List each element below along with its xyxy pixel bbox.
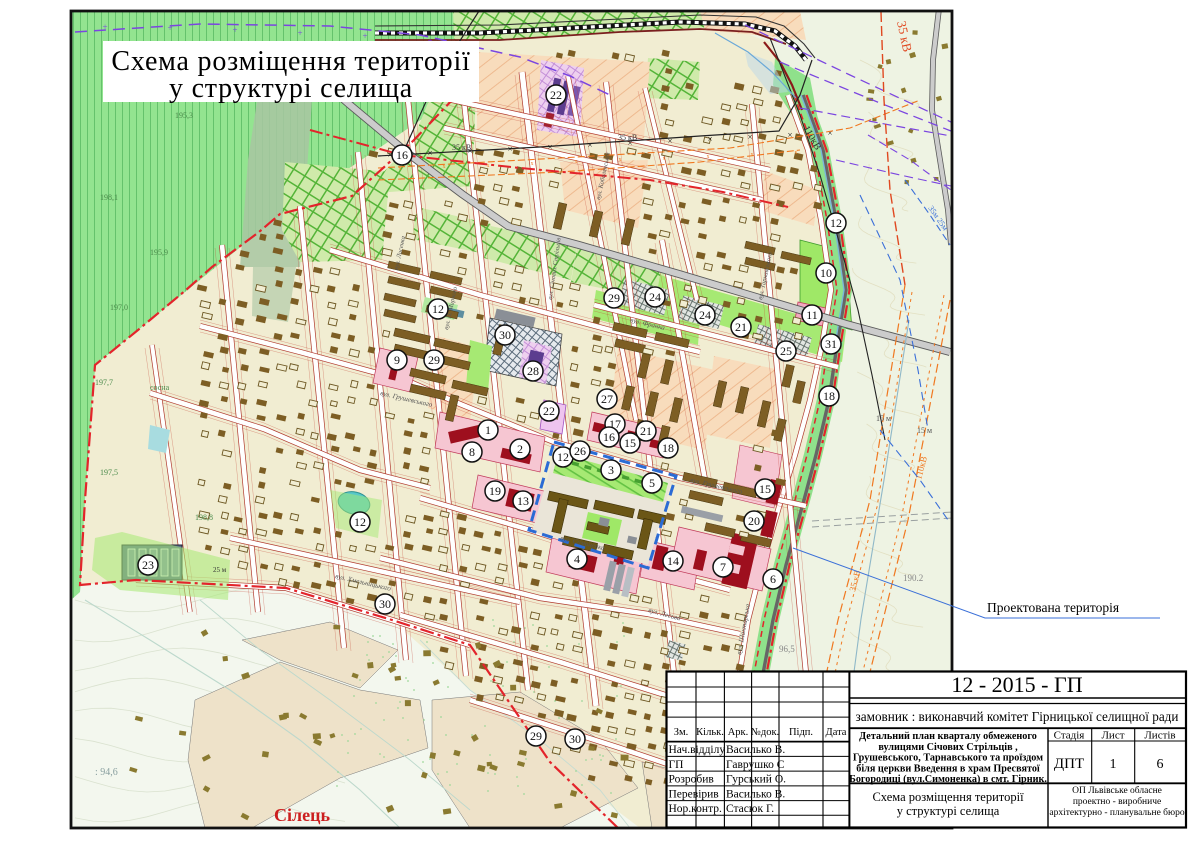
svg-text:Кільк.: Кільк. bbox=[696, 727, 724, 738]
svg-text:24: 24 bbox=[649, 290, 661, 304]
svg-text:12: 12 bbox=[354, 515, 366, 529]
svg-text:Підп.: Підп. bbox=[789, 727, 813, 738]
svg-text:×: × bbox=[427, 148, 432, 158]
svg-text:Стасюк Г.: Стасюк Г. bbox=[726, 803, 774, 815]
svg-text:Стадія: Стадія bbox=[1054, 730, 1085, 742]
svg-text:25 м: 25 м bbox=[213, 566, 227, 574]
svg-text:13: 13 bbox=[517, 494, 529, 508]
svg-text:x: x bbox=[399, 166, 402, 172]
svg-text:22: 22 bbox=[543, 404, 555, 418]
svg-text:12: 12 bbox=[557, 450, 569, 464]
svg-text:+: + bbox=[102, 22, 107, 32]
svg-text:29: 29 bbox=[608, 291, 620, 305]
svg-text:Гурський О.: Гурський О. bbox=[726, 774, 786, 786]
svg-text:96,5: 96,5 bbox=[779, 644, 795, 654]
svg-text:6: 6 bbox=[770, 572, 776, 586]
svg-text:Василько В.: Василько В. bbox=[726, 789, 785, 801]
svg-text:+: + bbox=[297, 28, 302, 38]
svg-text:29: 29 bbox=[428, 353, 440, 367]
svg-text:Василько В.: Василько В. bbox=[726, 744, 785, 756]
svg-text:ГП: ГП bbox=[669, 759, 684, 771]
svg-text:15: 15 bbox=[759, 482, 771, 496]
svg-text:Гаврушко С: Гаврушко С bbox=[726, 759, 785, 771]
svg-text:6: 6 bbox=[1157, 757, 1164, 772]
svg-text:11: 11 bbox=[806, 308, 818, 322]
svg-text:×: × bbox=[587, 140, 592, 150]
svg-text:×: × bbox=[747, 132, 752, 142]
svg-text:+: + bbox=[167, 23, 172, 33]
svg-text:у структурі селища: у структурі селища bbox=[169, 73, 413, 104]
svg-text:4: 4 bbox=[574, 552, 580, 566]
svg-text:×: × bbox=[667, 136, 672, 146]
svg-text:замовник : виконавчий комітет: замовник : виконавчий комітет Гірницької… bbox=[856, 709, 1179, 724]
svg-text:35 кВ: 35 кВ bbox=[452, 143, 471, 152]
svg-text:30: 30 bbox=[499, 328, 511, 342]
svg-text:15 м: 15 м bbox=[917, 426, 932, 435]
svg-text:сосна: сосна bbox=[150, 383, 170, 392]
svg-text:Детальний план кварталу обмеже: Детальний план кварталу обмеженого bbox=[859, 731, 1037, 742]
svg-text:23: 23 bbox=[142, 558, 154, 572]
svg-text:28: 28 bbox=[527, 364, 539, 378]
svg-text:архітектурно - планувальне бюр: архітектурно - планувальне бюро bbox=[1049, 807, 1184, 818]
svg-text:19: 19 bbox=[489, 484, 501, 498]
svg-text:198,1: 198,1 bbox=[100, 193, 118, 202]
svg-text:197,5: 197,5 bbox=[100, 468, 118, 477]
svg-text:×: × bbox=[827, 128, 832, 138]
svg-text:Дата: Дата bbox=[826, 727, 847, 738]
svg-text:Схема розміщення території: Схема розміщення території bbox=[872, 790, 1024, 804]
svg-text:21: 21 bbox=[735, 320, 747, 334]
svg-text:24: 24 bbox=[699, 308, 711, 322]
svg-text:Арк.: Арк. bbox=[728, 727, 749, 738]
svg-text:21: 21 bbox=[640, 424, 652, 438]
svg-text:x: x bbox=[619, 157, 622, 163]
svg-text:2: 2 bbox=[517, 442, 523, 456]
svg-text:30: 30 bbox=[569, 732, 581, 746]
svg-text:x: x bbox=[663, 156, 666, 162]
svg-text:біля церкви Введення в храм Пр: біля церкви Введення в храм Пресвятої bbox=[856, 763, 1040, 774]
svg-text:проектно - виробниче: проектно - виробниче bbox=[1073, 796, 1161, 807]
svg-text:№док.: №док. bbox=[751, 727, 779, 738]
svg-text:×: × bbox=[547, 142, 552, 152]
svg-text:15: 15 bbox=[624, 436, 636, 450]
svg-text:197,7: 197,7 bbox=[95, 378, 113, 387]
svg-text:20: 20 bbox=[748, 514, 760, 528]
svg-text:35 кВ: 35 кВ bbox=[618, 133, 637, 142]
svg-text:18: 18 bbox=[662, 441, 674, 455]
svg-text:+: + bbox=[232, 25, 237, 35]
svg-text:Сілець: Сілець bbox=[274, 805, 330, 825]
svg-text:16: 16 bbox=[603, 430, 615, 444]
svg-text:: 94,6: : 94,6 bbox=[95, 767, 118, 778]
svg-text:10: 10 bbox=[820, 266, 832, 280]
svg-text:x: x bbox=[751, 152, 754, 158]
svg-text:x: x bbox=[795, 150, 798, 156]
svg-text:у структурі селища: у структурі селища bbox=[897, 804, 1000, 818]
svg-text:7: 7 bbox=[720, 560, 726, 574]
svg-text:×: × bbox=[507, 144, 512, 154]
svg-text:1: 1 bbox=[1110, 757, 1117, 772]
svg-text:198,8: 198,8 bbox=[195, 513, 213, 522]
svg-text:Нач.відділу: Нач.відділу bbox=[669, 744, 726, 756]
svg-text:Нор.контр.: Нор.контр. bbox=[669, 803, 723, 815]
svg-text:ОП Львівське обласне: ОП Львівське обласне bbox=[1072, 785, 1162, 796]
svg-text:18: 18 bbox=[823, 389, 835, 403]
svg-text:Зм.: Зм. bbox=[674, 727, 689, 738]
svg-text:22: 22 bbox=[550, 88, 562, 102]
svg-text:195,3: 195,3 bbox=[175, 111, 193, 120]
svg-text:12: 12 bbox=[432, 302, 444, 316]
svg-text:Лист: Лист bbox=[1101, 730, 1124, 742]
svg-text:31: 31 bbox=[825, 337, 837, 351]
svg-text:195,9: 195,9 bbox=[150, 248, 168, 257]
svg-text:+: + bbox=[362, 31, 367, 41]
svg-text:197,0: 197,0 bbox=[110, 303, 128, 312]
svg-text:Проектована територія: Проектована територія bbox=[987, 600, 1119, 615]
svg-text:3: 3 bbox=[608, 463, 614, 477]
svg-text:15 м: 15 м bbox=[876, 414, 891, 423]
svg-text:30: 30 bbox=[379, 597, 391, 611]
svg-text:×: × bbox=[707, 134, 712, 144]
svg-text:190.2: 190.2 bbox=[903, 573, 923, 583]
svg-text:Розробив: Розробив bbox=[669, 774, 715, 786]
svg-text:Грушевського, Тарнавського та: Грушевського, Тарнавського та проїздом bbox=[853, 753, 1043, 764]
svg-text:12: 12 bbox=[830, 216, 842, 230]
svg-text:14: 14 bbox=[667, 554, 679, 568]
svg-text:ДПТ: ДПТ bbox=[1054, 756, 1084, 772]
svg-text:x: x bbox=[443, 164, 446, 170]
svg-text:16: 16 bbox=[396, 148, 408, 162]
svg-text:5: 5 bbox=[649, 476, 655, 490]
svg-text:26: 26 bbox=[574, 444, 586, 458]
svg-text:Листів: Листів bbox=[1144, 730, 1175, 742]
svg-text:25: 25 bbox=[780, 344, 792, 358]
svg-text:x: x bbox=[575, 159, 578, 165]
svg-text:8: 8 bbox=[469, 445, 475, 459]
svg-text:1: 1 bbox=[485, 423, 491, 437]
svg-text:9: 9 bbox=[394, 353, 400, 367]
svg-text:вулицями Січових Стрільців ,: вулицями Січових Стрільців , bbox=[878, 742, 1018, 753]
svg-text:29: 29 bbox=[530, 729, 542, 743]
svg-text:12 - 2015 - ГП: 12 - 2015 - ГП bbox=[951, 672, 1082, 697]
svg-text:x: x bbox=[707, 154, 710, 160]
svg-text:Богородиці (вул.Симоненка) в с: Богородиці (вул.Симоненка) в смт. Гірник… bbox=[849, 774, 1047, 785]
svg-text:x: x bbox=[531, 161, 534, 167]
svg-text:Перевірив: Перевірив bbox=[669, 789, 720, 801]
svg-text:27: 27 bbox=[601, 392, 613, 406]
